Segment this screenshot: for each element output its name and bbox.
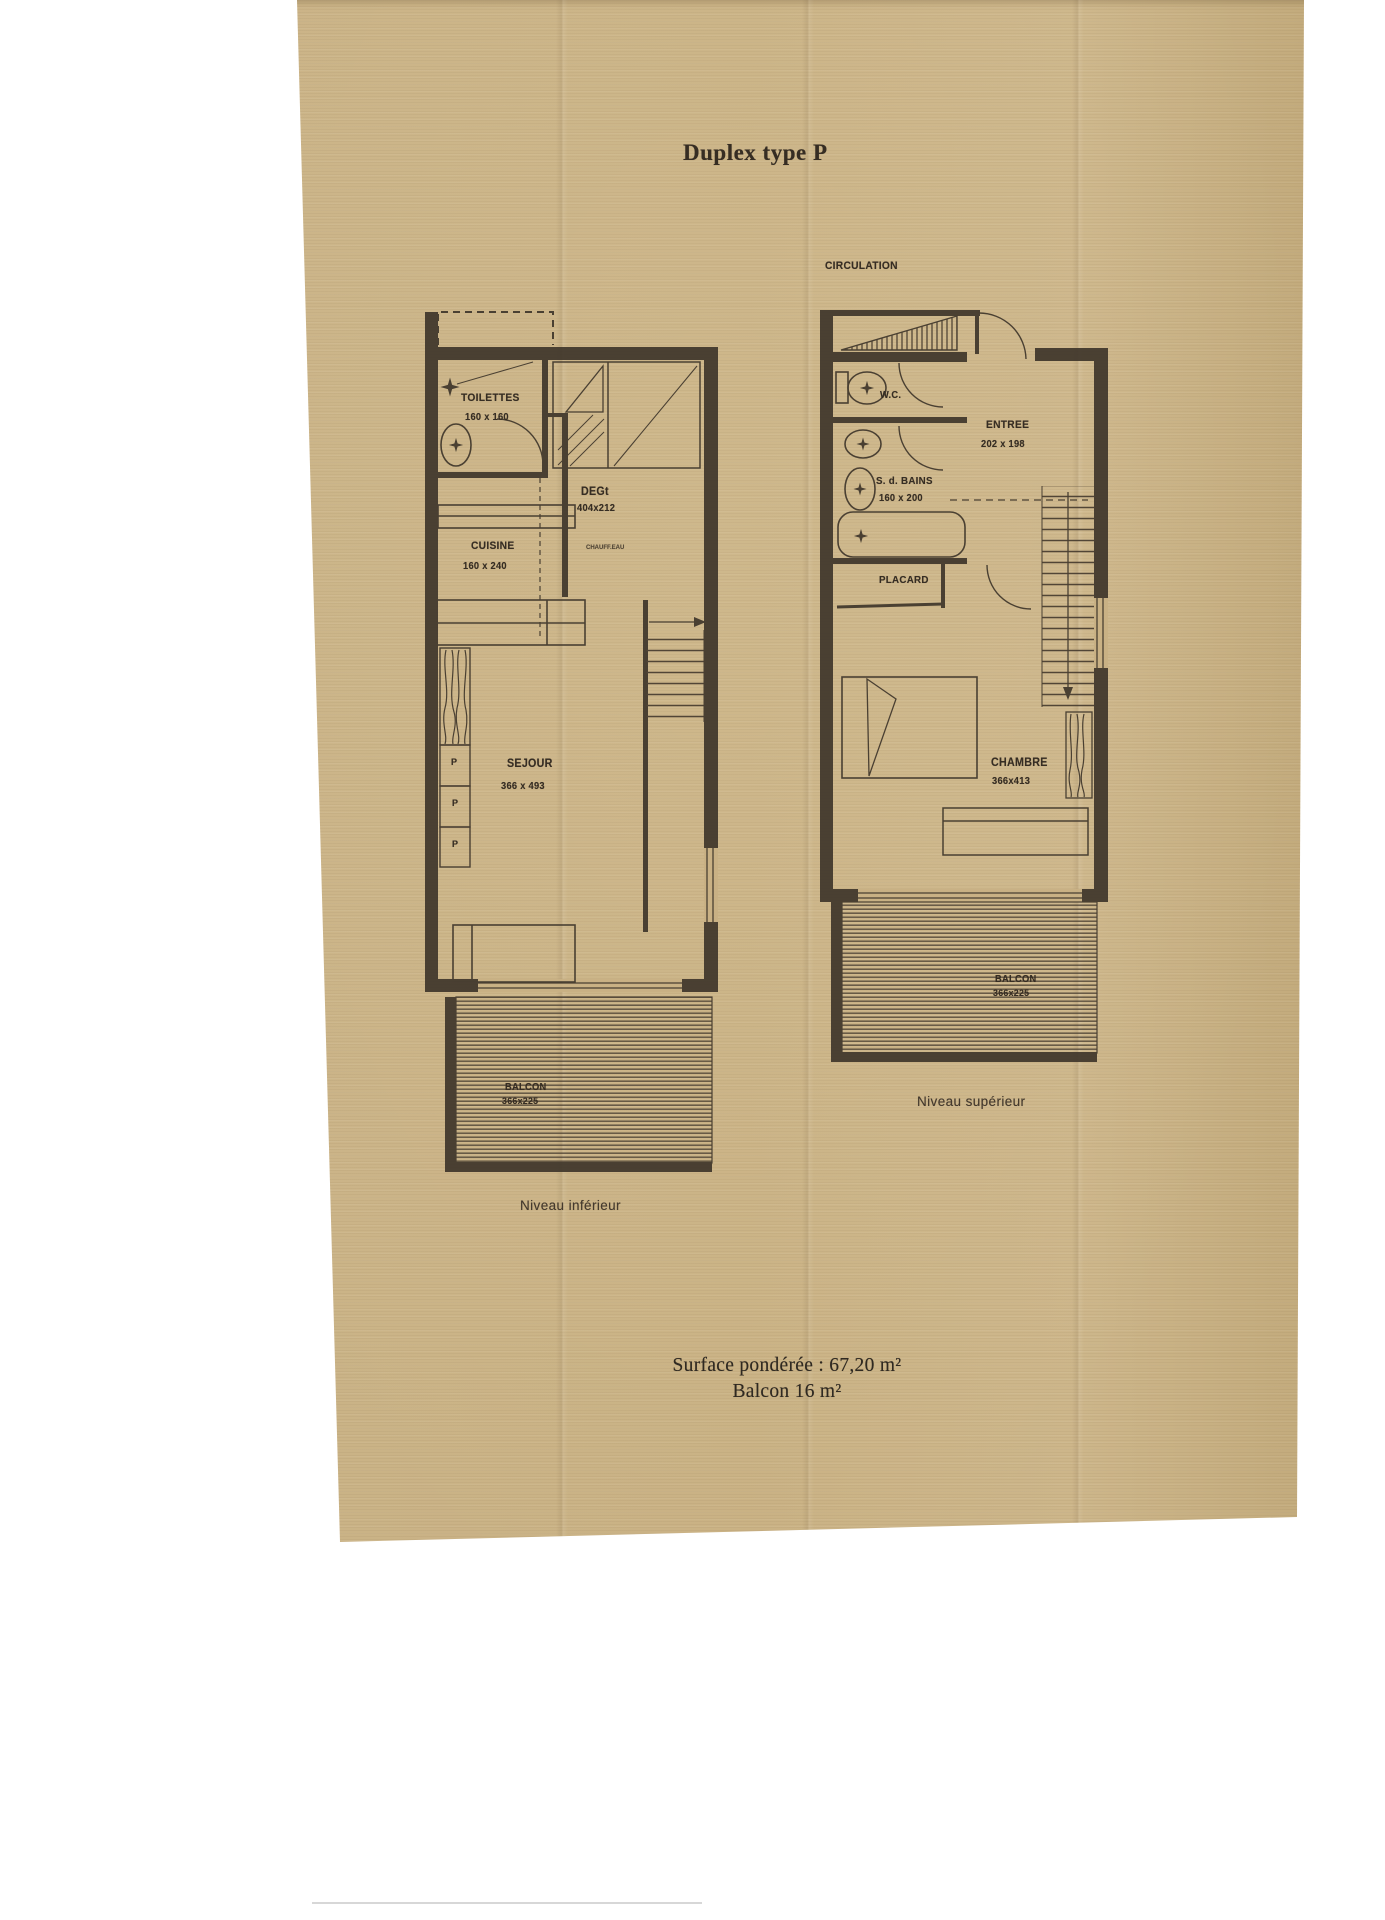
page-title: Duplex type P xyxy=(683,141,828,164)
room-dim-balcon-upper: 366x225 xyxy=(993,989,1029,999)
room-label-wc: W.C. xyxy=(880,391,901,401)
upper-plan-drawing xyxy=(820,310,1108,1062)
room-label-placard: PLACARD xyxy=(879,575,929,586)
placard-mark: P xyxy=(452,799,458,808)
bed-upper-right xyxy=(553,362,700,468)
upper-stairs xyxy=(1042,486,1094,707)
lower-stairs xyxy=(646,617,706,722)
room-dim-toilettes: 160 x 160 xyxy=(465,413,509,423)
scanner-edge-artifact xyxy=(312,1902,702,1904)
room-label-degagement: DEGt xyxy=(581,487,609,499)
room-dim-sdb: 160 x 200 xyxy=(879,494,923,504)
room-label-toilettes: TOILETTES xyxy=(461,393,520,404)
lower-balcony xyxy=(445,997,712,1172)
level-caption-upper: Niveau supérieur xyxy=(917,1095,1025,1109)
bench xyxy=(943,808,1088,855)
room-label-entree: ENTREE xyxy=(986,420,1029,431)
room-label-sdb: S. d. BAINS xyxy=(876,476,933,487)
level-caption-lower: Niveau inférieur xyxy=(520,1199,621,1213)
placard-bottom-wall xyxy=(837,604,943,607)
room-label-chambre: CHAMBRE xyxy=(991,758,1048,770)
room-dim-degagement: 404x212 xyxy=(577,504,615,514)
dashed-overhang xyxy=(438,312,553,345)
room-dim-cuisine: 160 x 240 xyxy=(463,562,507,572)
room-dim-entree: 202 x 198 xyxy=(981,440,1025,450)
sofa xyxy=(453,925,575,982)
room-label-balcon-lower: BALCON xyxy=(505,1083,546,1093)
summary-block: Surface pondérée : 67,20 m² Balcon 16 m² xyxy=(600,1356,974,1401)
wood-strip-upper xyxy=(1066,712,1092,798)
room-dim-sejour: 366 x 493 xyxy=(501,782,545,792)
small-appliance-note: CHAUFF.EAU xyxy=(586,545,624,551)
room-label-cuisine: CUISINE xyxy=(471,541,514,552)
circulation-stair-hatch xyxy=(841,316,957,350)
surface-summary-line: Surface pondérée : 67,20 m² xyxy=(600,1356,974,1376)
room-label-balcon-upper: BALCON xyxy=(995,975,1036,985)
circulation-label: CIRCULATION xyxy=(825,261,898,272)
balcon-summary-line: Balcon 16 m² xyxy=(600,1382,974,1402)
kraft-paper-sheet: Duplex type P TOILETTES 160 x 160 CUISIN… xyxy=(0,0,1385,1920)
scanned-floorplan-page: Duplex type P TOILETTES 160 x 160 CUISIN… xyxy=(0,0,1385,1920)
wc-fixtures xyxy=(836,372,886,404)
room-dim-chambre: 366x413 xyxy=(992,777,1030,787)
room-label-sejour: SEJOUR xyxy=(507,759,553,771)
placard-mark: P xyxy=(452,840,458,849)
wood-closet-strip xyxy=(440,648,470,745)
room-dim-balcon-lower: 366x225 xyxy=(502,1097,538,1107)
bed xyxy=(842,677,977,778)
floor-plan-linework xyxy=(0,0,1385,1920)
upper-balcony xyxy=(831,902,1097,1062)
lower-windows xyxy=(478,848,718,992)
placard-mark: P xyxy=(451,758,457,767)
lower-plan-drawing xyxy=(425,312,718,1172)
